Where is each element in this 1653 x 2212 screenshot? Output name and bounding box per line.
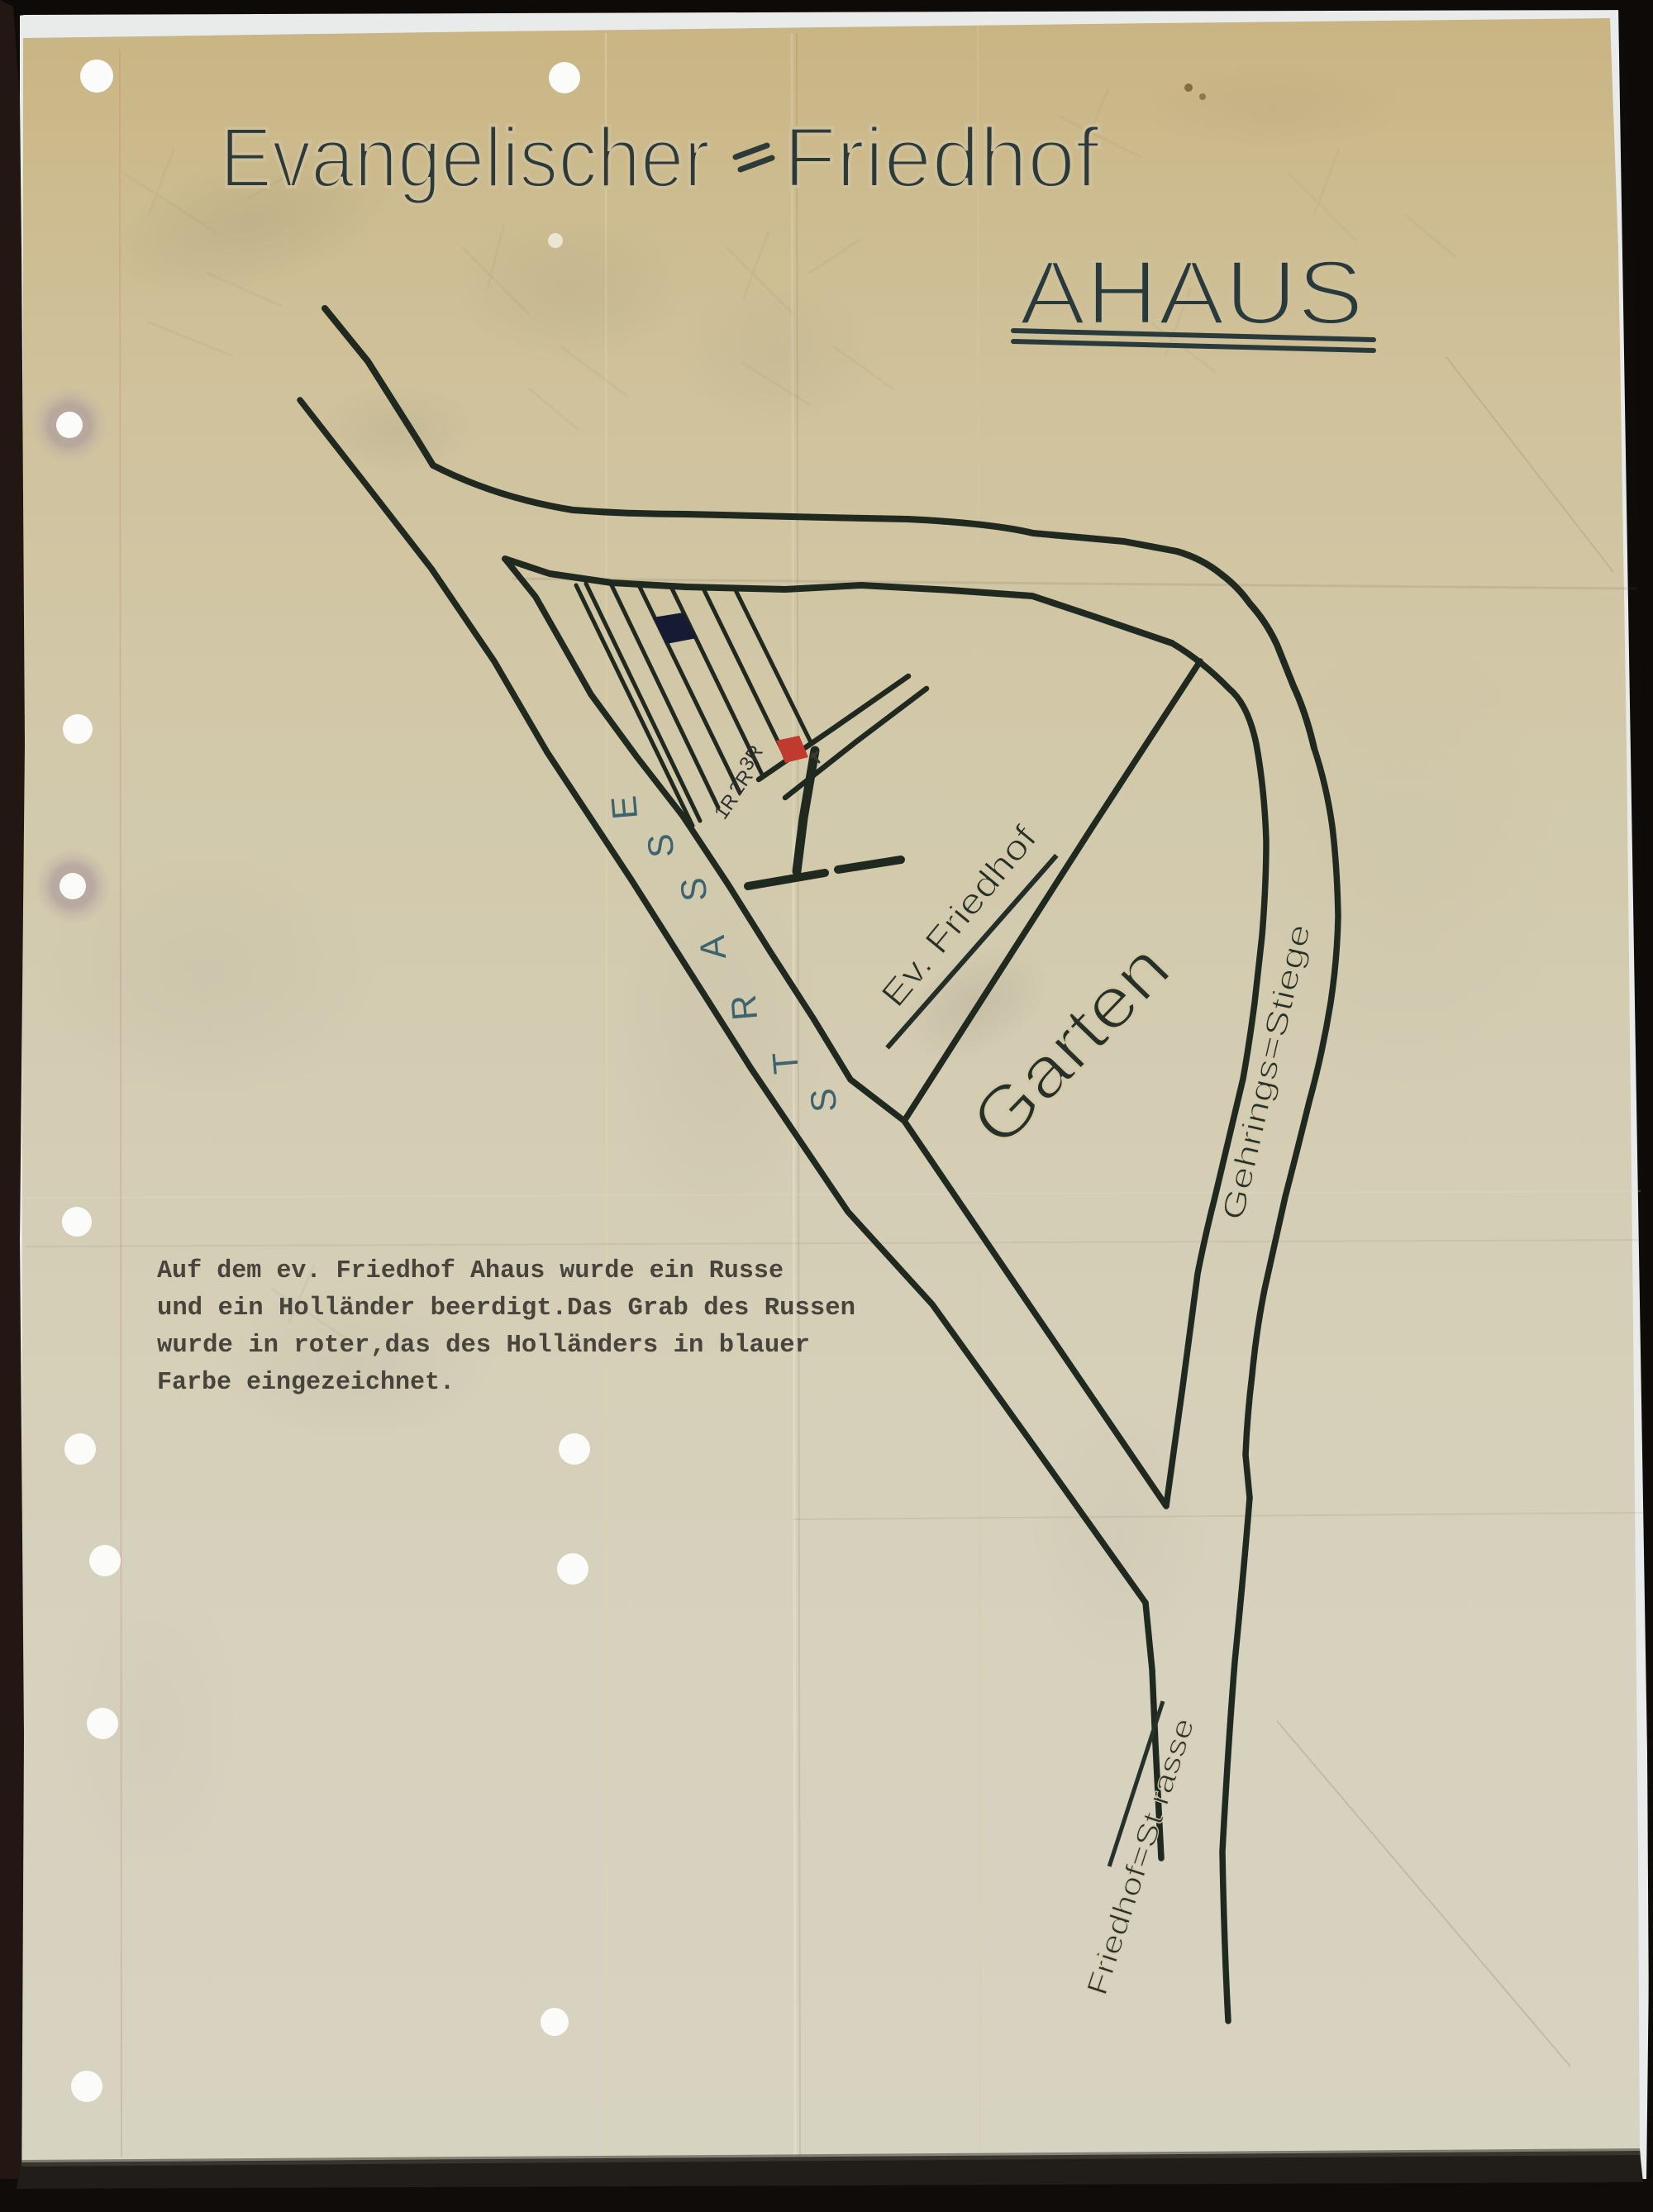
svg-text:S: S [803, 1087, 845, 1114]
svg-text:T: T [765, 1051, 807, 1075]
svg-text:wurde in roter‚das des Holländ: wurde in roter‚das des Holländers in bla… [157, 1331, 810, 1360]
svg-text:S: S [674, 876, 715, 903]
svg-text:Friedhof: Friedhof [784, 110, 1099, 205]
svg-text:AHAUS: AHAUS [1019, 242, 1364, 344]
svg-text:Farbe eingezeichnet.: Farbe eingezeichnet. [157, 1368, 455, 1397]
svg-text:A: A [693, 933, 734, 961]
svg-text:R: R [724, 993, 766, 1022]
svg-text:Auf dem ev. Friedhof Ahaus wur: Auf dem ev. Friedhof Ahaus wurde ein Rus… [157, 1256, 784, 1285]
svg-text:E: E [604, 794, 645, 822]
svg-text:Evangelischer: Evangelischer [220, 110, 710, 205]
svg-text:und ein Holländer beerdigt.Das: und ein Holländer beerdigt.Das Grab des … [157, 1294, 855, 1323]
svg-text:S: S [641, 832, 682, 860]
